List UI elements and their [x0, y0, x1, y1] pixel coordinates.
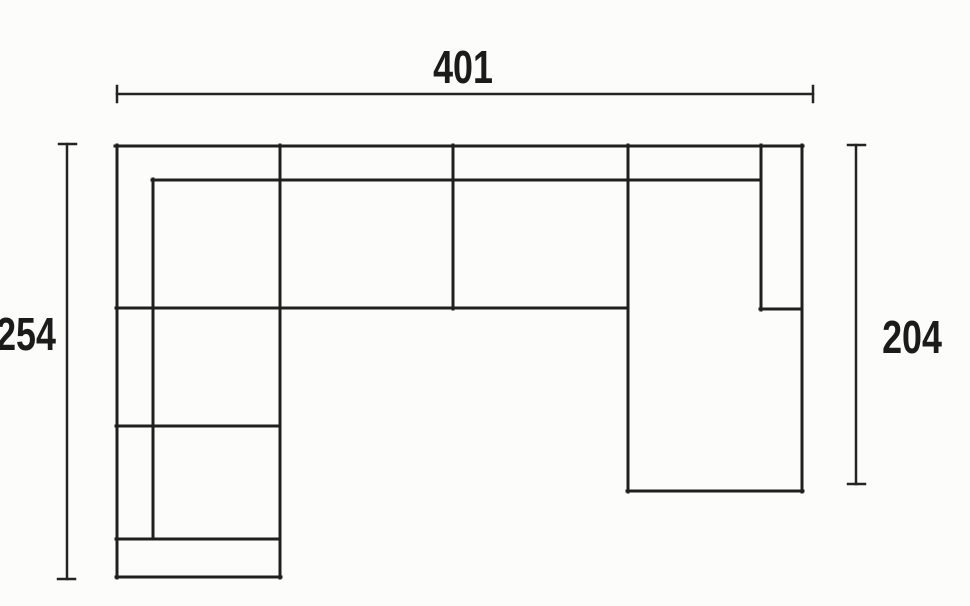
- dimension-label-top-width: 401: [416, 44, 510, 90]
- diagram-canvas: 401 254 204: [0, 0, 970, 606]
- dimension-lines: [58, 86, 865, 579]
- sofa-outline-lines: [115, 145, 803, 578]
- dimension-label-left-depth: 254: [0, 311, 67, 357]
- dimension-label-right-depth: 204: [871, 314, 952, 360]
